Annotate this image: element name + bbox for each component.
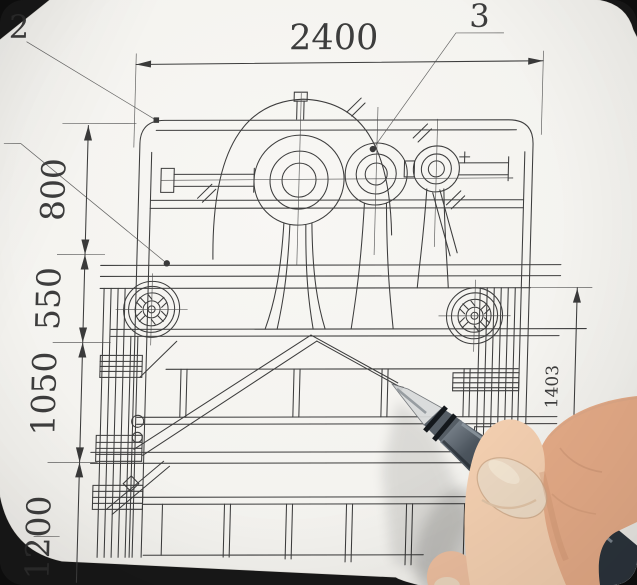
dimension-label-1050: 1050 — [23, 352, 64, 436]
callout-label-2: 2 — [8, 8, 29, 46]
dimension-label-1200: 1200 — [17, 495, 58, 579]
callout-label-3: 3 — [469, 0, 490, 35]
photo-of-technical-drawing: 2400 800 550 1050 1200 1403 — [0, 0, 637, 585]
dimension-label-550: 550 — [28, 267, 69, 330]
dimension-label-2400: 2400 — [289, 18, 379, 58]
scene-svg: 2400 800 550 1050 1200 1403 — [0, 0, 637, 585]
dimension-label-1403: 1403 — [542, 365, 563, 408]
dimension-label-800: 800 — [33, 158, 74, 221]
